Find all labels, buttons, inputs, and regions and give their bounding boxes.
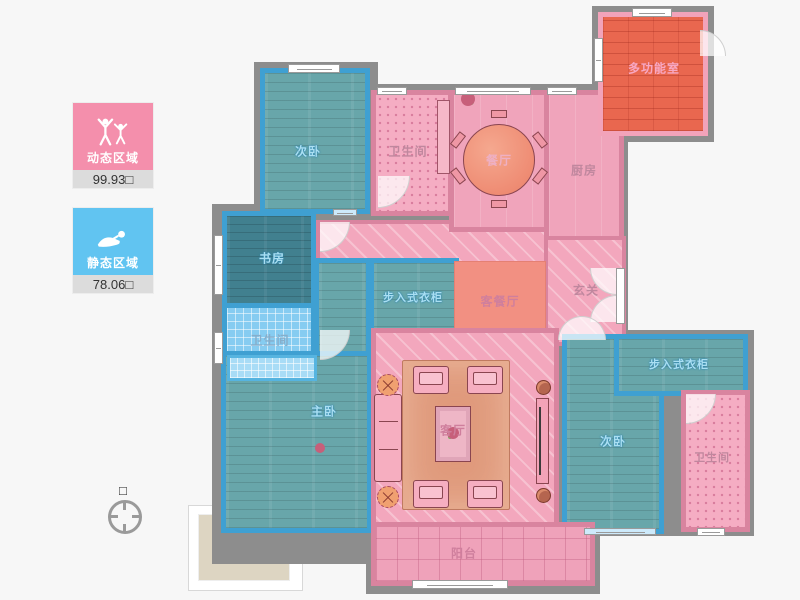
window — [412, 580, 508, 589]
room-label-foyer: 玄关 — [573, 282, 599, 299]
legend-dynamic-label: 动态区域 — [87, 149, 139, 166]
room-balcony[interactable] — [371, 522, 595, 586]
room-label-bath-right: 卫生间 — [694, 449, 730, 465]
compass-north-marker: □ — [119, 484, 127, 497]
room-label-bath-top: 卫生间 — [388, 143, 427, 160]
legend-card-static: 静态区域 78.06□ — [73, 208, 153, 293]
armchair — [413, 480, 449, 508]
room-label-master: 主卧 — [311, 403, 337, 420]
entry-door-frame — [616, 268, 625, 324]
master-bay-window — [227, 355, 317, 381]
legend-static-label: 静态区域 — [87, 254, 139, 271]
window — [594, 38, 603, 82]
window — [632, 8, 672, 17]
window — [333, 209, 357, 216]
plant-icon — [536, 488, 551, 503]
room-label-bedroom-top: 次卧 — [295, 143, 321, 160]
armchair — [413, 366, 449, 394]
room-label-closet-right: 步入式衣柜 — [649, 356, 709, 372]
window — [584, 528, 656, 535]
armchair — [467, 366, 503, 394]
legend-static-value: 78.06□ — [73, 275, 153, 293]
room-label-bath-left: 卫生间 — [250, 332, 289, 349]
dining-cabinet — [437, 100, 450, 174]
window — [697, 528, 725, 536]
plant-icon — [536, 380, 551, 395]
window — [547, 87, 577, 95]
legend-card-dynamic: 动态区域 99.93□ — [73, 103, 153, 188]
room-label-closet-mid: 步入式衣柜 — [383, 289, 443, 305]
side-table — [377, 374, 399, 396]
dining-chair — [491, 110, 507, 118]
room-label-kitchen: 厨房 — [571, 162, 597, 179]
room-label-bedroom-right: 次卧 — [600, 433, 626, 450]
legend-dynamic-color: 动态区域 — [73, 103, 153, 170]
window — [214, 235, 223, 295]
room-label-study: 书房 — [259, 250, 285, 267]
room-label-dining: 餐厅 — [486, 152, 512, 169]
window — [377, 87, 407, 95]
window — [288, 64, 340, 73]
room-label-multi: 多功能室 — [628, 60, 680, 77]
legend-dynamic-value: 99.93□ — [73, 170, 153, 188]
room-label-living-dining: 客餐厅 — [480, 293, 519, 310]
legend-static-color: 静态区域 — [73, 208, 153, 275]
static-area-icon — [94, 226, 132, 252]
window — [214, 332, 223, 364]
side-table — [377, 486, 399, 508]
door-multi-function — [700, 30, 726, 56]
sofa — [374, 394, 402, 482]
armchair — [467, 480, 503, 508]
room-label-balcony: 阳台 — [451, 545, 477, 562]
tv-stand — [536, 398, 549, 484]
room-bedroom-top[interactable] — [260, 68, 370, 214]
dining-chair — [491, 200, 507, 208]
window — [455, 87, 531, 95]
plant-icon — [315, 443, 325, 453]
room-label-living: 客厅 — [440, 422, 466, 439]
compass-icon — [108, 500, 142, 534]
dynamic-area-icon — [94, 117, 132, 147]
